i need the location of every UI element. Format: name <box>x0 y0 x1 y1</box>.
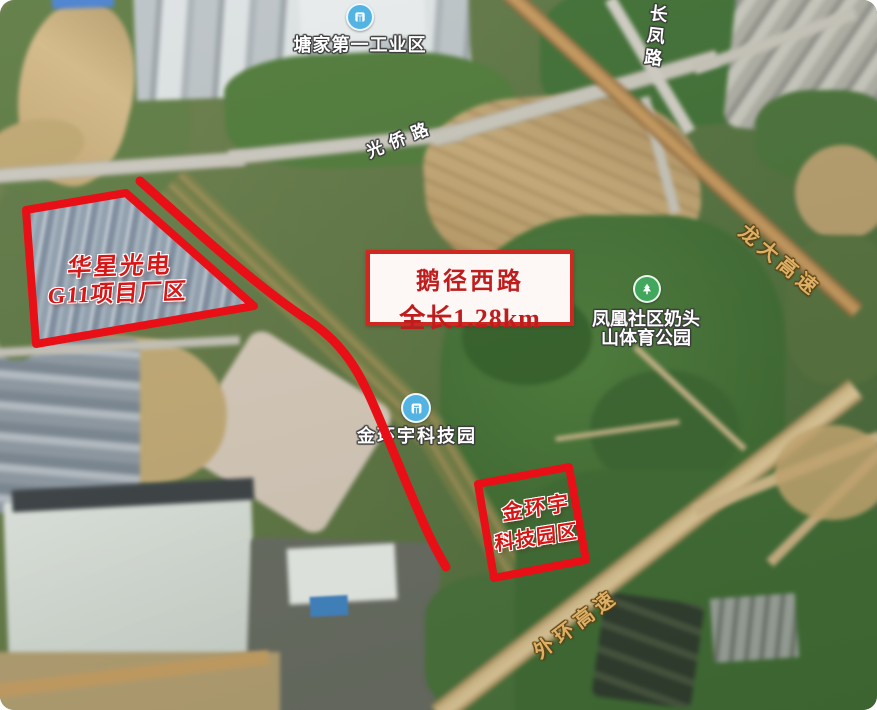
route-info-road-name: 鹅径西路 <box>370 261 570 296</box>
screenshot-frame: 鹅径西路 全长1.28km 华星光电 G11项目厂区 金环宇 科技园区 塘家第一… <box>0 0 877 710</box>
route-info-box: 鹅径西路 全长1.28km <box>366 250 574 326</box>
ejing-road-route-line <box>140 181 446 567</box>
annotation-overlay <box>0 0 877 710</box>
satellite-map: 鹅径西路 全长1.28km 华星光电 G11项目厂区 金环宇 科技园区 塘家第一… <box>0 0 877 710</box>
route-info-length: 全长1.28km <box>370 298 570 335</box>
huaxing-area-label-line2: G11项目厂区 <box>28 271 207 311</box>
